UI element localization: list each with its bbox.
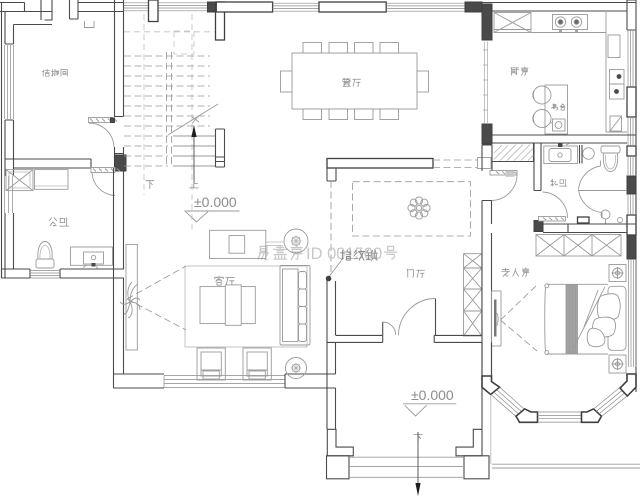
svg-text:±0.000: ±0.000 — [194, 194, 237, 210]
svg-text:±0.000: ±0.000 — [411, 387, 454, 403]
svg-text:ID 001500: ID 001500 — [306, 245, 382, 263]
